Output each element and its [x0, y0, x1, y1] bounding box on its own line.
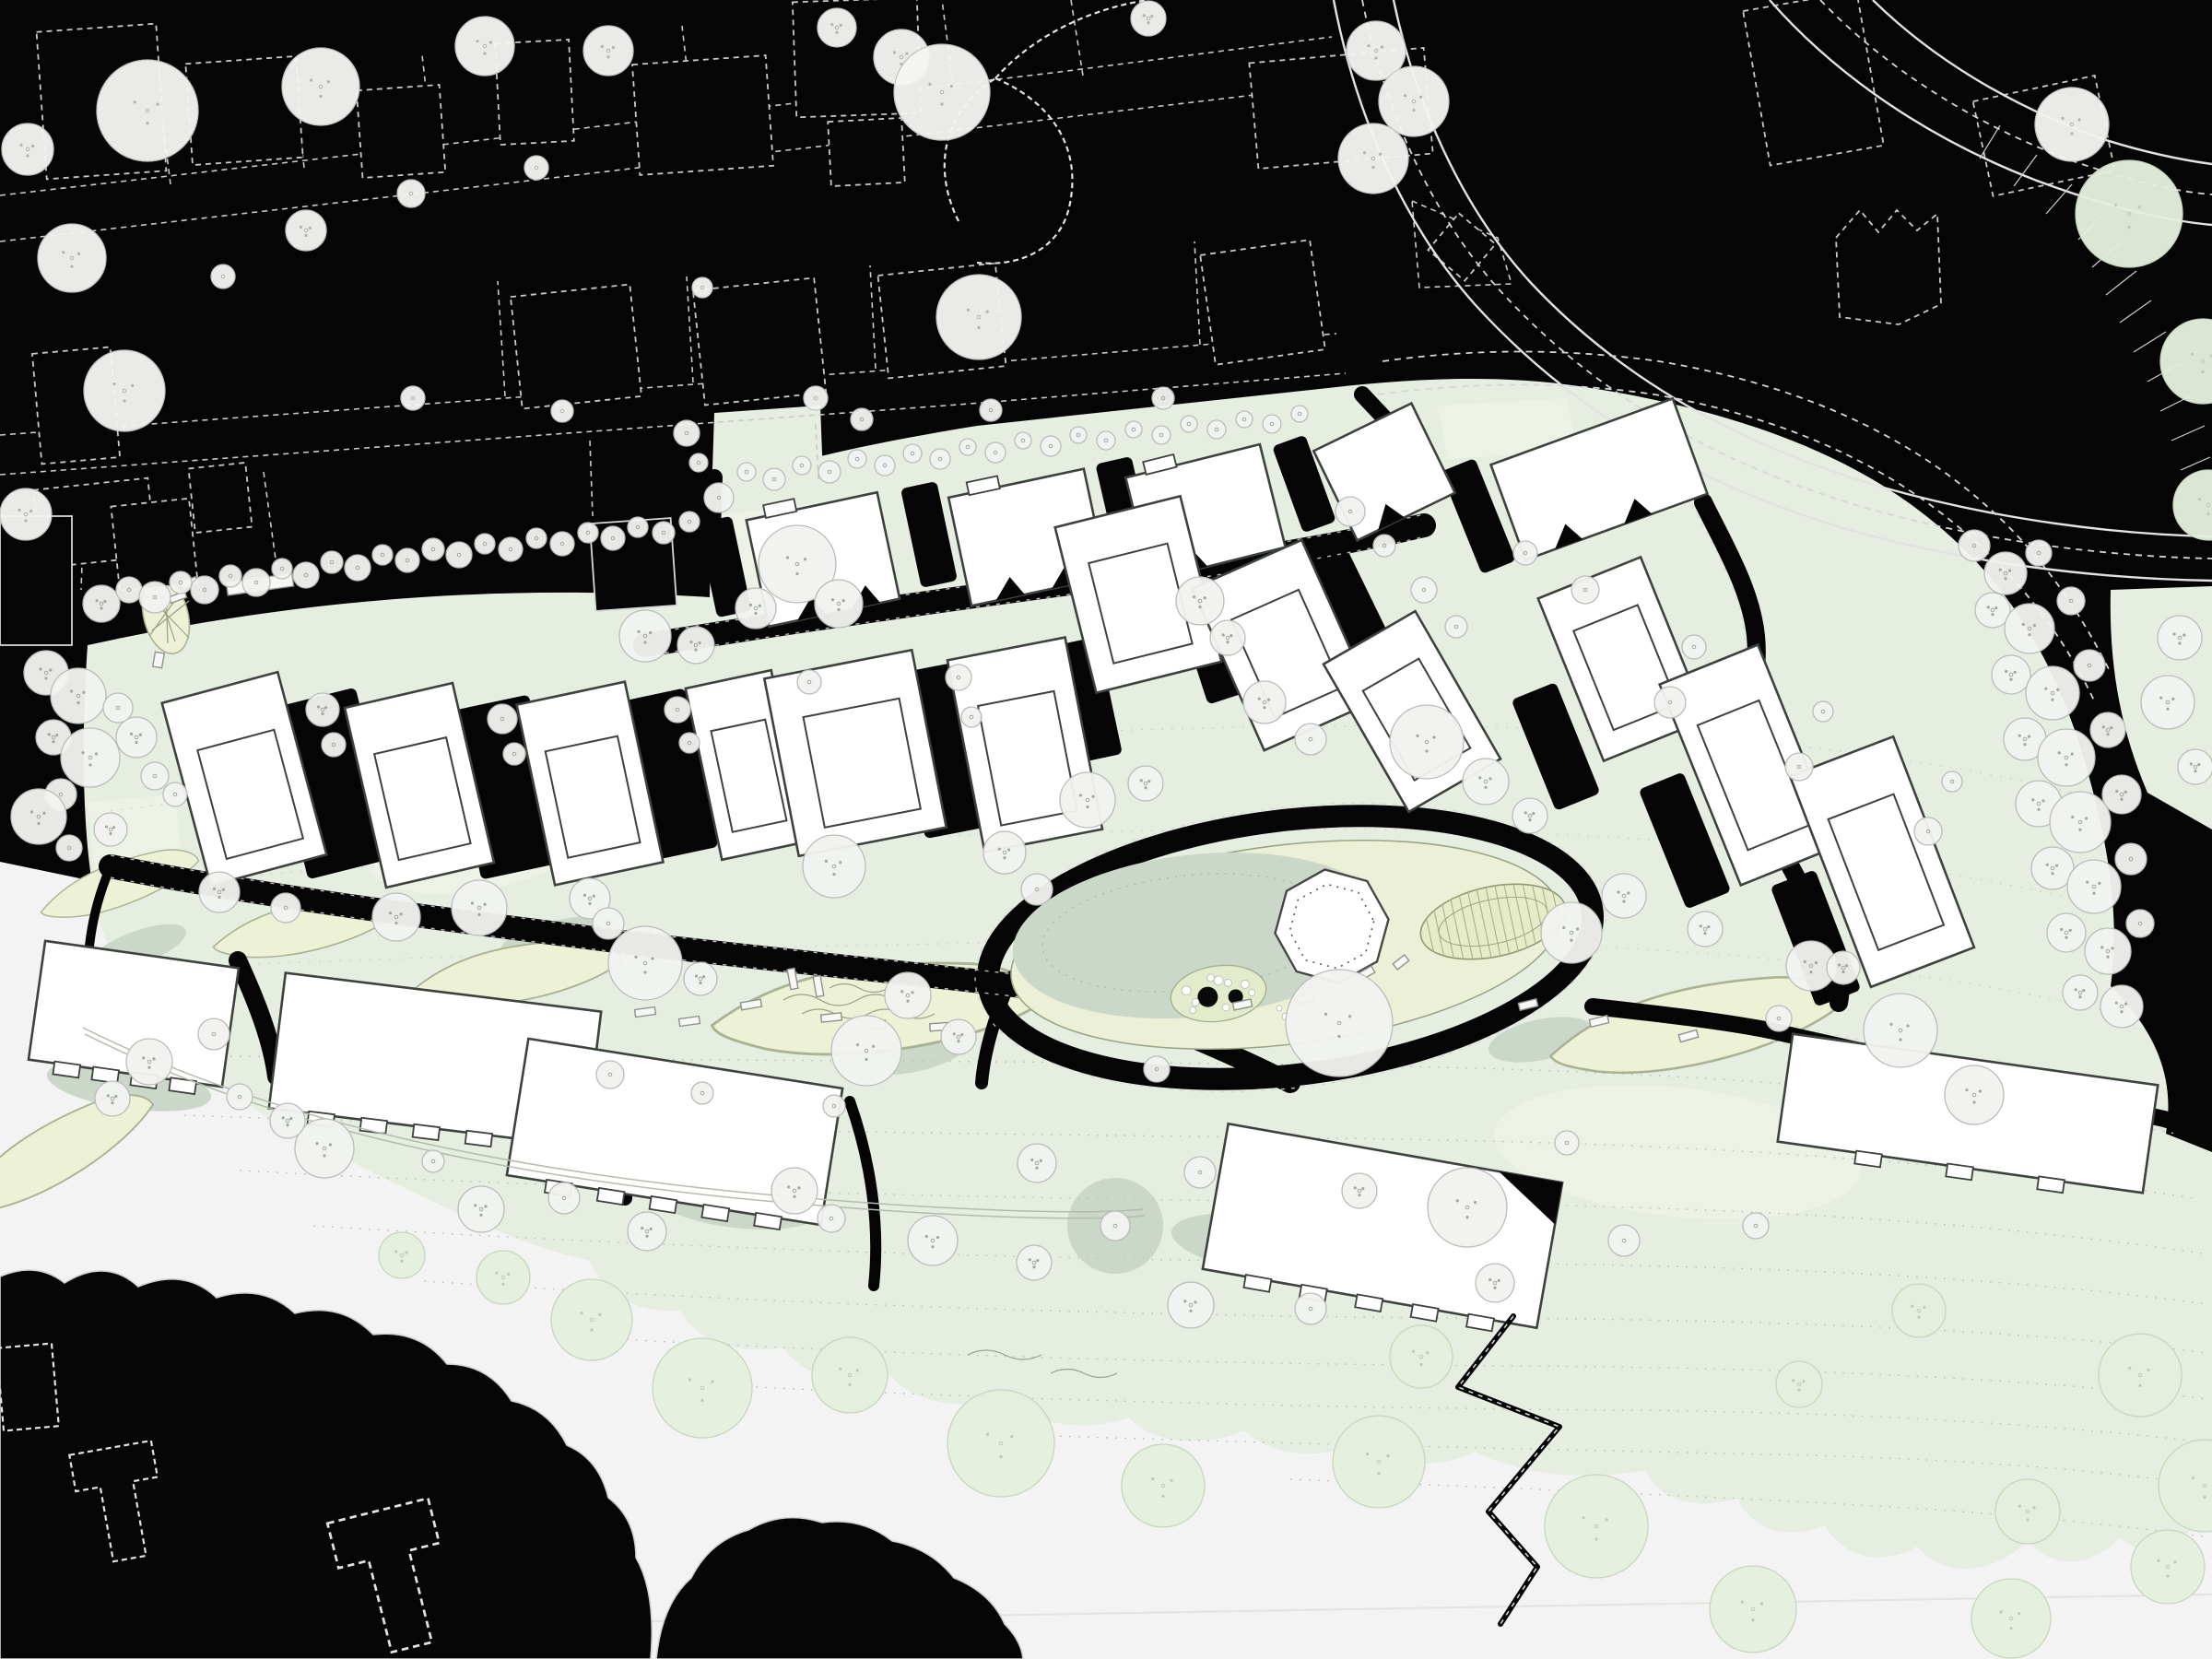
tree	[2057, 587, 2085, 615]
tree	[452, 880, 507, 935]
tree	[1914, 818, 1942, 845]
tree	[1131, 1, 1166, 36]
tree	[551, 400, 573, 422]
tree	[2126, 910, 2154, 937]
tree	[2074, 650, 2105, 681]
tree	[2141, 676, 2194, 729]
tree	[2050, 792, 2111, 853]
tree	[475, 534, 495, 554]
tree	[372, 545, 393, 565]
tree	[763, 468, 785, 490]
tree	[628, 1212, 666, 1251]
tree	[1128, 766, 1163, 801]
tree	[227, 1084, 253, 1110]
tree	[691, 1082, 713, 1104]
tree	[936, 275, 1021, 359]
tree	[593, 908, 624, 939]
tree	[282, 48, 359, 125]
tree	[1743, 1213, 1769, 1239]
tree	[38, 224, 106, 292]
tree	[2035, 88, 2109, 161]
tree	[51, 668, 106, 724]
tree	[1335, 497, 1365, 526]
tree	[2100, 985, 2143, 1028]
tree	[550, 532, 574, 556]
tree	[293, 562, 319, 588]
tree	[946, 665, 971, 690]
tree	[2099, 1334, 2182, 1417]
tree	[831, 1016, 901, 1086]
tree	[163, 782, 187, 806]
tree	[1555, 1131, 1579, 1155]
tree	[2085, 928, 2131, 974]
tree	[1785, 753, 1813, 781]
tree	[1813, 701, 1833, 722]
tree	[1827, 951, 1860, 984]
tree	[2026, 540, 2052, 566]
tree	[1184, 1157, 1216, 1188]
tree	[524, 156, 548, 180]
tree	[306, 693, 339, 726]
tree	[1864, 994, 1937, 1067]
tree	[397, 180, 425, 207]
tree	[1710, 1566, 1796, 1653]
tree	[1445, 616, 1467, 638]
tree	[815, 580, 863, 628]
tree	[1995, 1479, 2060, 1544]
bench	[153, 652, 165, 667]
tree	[737, 463, 756, 481]
tree	[83, 585, 120, 622]
tree	[219, 565, 241, 587]
tree	[1545, 1475, 1648, 1578]
tree	[551, 1279, 632, 1360]
tree	[583, 26, 633, 76]
tree	[1428, 1168, 1507, 1247]
tree	[345, 555, 371, 581]
tree	[1971, 1579, 2051, 1658]
tree	[526, 528, 547, 548]
tree	[1682, 635, 1706, 659]
tree	[1463, 759, 1509, 805]
tree	[818, 8, 856, 47]
tree	[679, 512, 700, 532]
tree	[1168, 1282, 1214, 1328]
tree	[679, 733, 700, 753]
tree	[242, 569, 270, 596]
tree	[851, 408, 873, 430]
tree	[959, 439, 976, 455]
tree	[797, 670, 821, 694]
tree	[422, 538, 444, 560]
tree	[141, 762, 169, 790]
tree	[804, 386, 828, 410]
tree	[885, 972, 931, 1018]
tree	[2131, 1530, 2205, 1604]
tree	[103, 693, 133, 723]
tree	[692, 277, 712, 298]
tree	[1373, 535, 1395, 557]
tree	[980, 399, 1002, 421]
tree	[1688, 912, 1723, 947]
tree	[2178, 749, 2212, 784]
tree	[116, 717, 157, 758]
tree	[1295, 1293, 1326, 1324]
tree	[823, 1095, 845, 1117]
tree	[1263, 415, 1281, 433]
tree	[1984, 552, 2027, 594]
tree	[422, 1150, 444, 1172]
tree	[401, 386, 425, 410]
tree	[1602, 874, 1646, 918]
tree	[908, 1216, 958, 1265]
tree	[56, 835, 82, 861]
tree	[1992, 655, 2030, 694]
tree	[1411, 577, 1437, 603]
bench	[821, 1013, 842, 1022]
tree	[1892, 1284, 1946, 1337]
tree	[2005, 604, 2054, 653]
tree	[2, 124, 53, 175]
site-plan-drawing	[0, 0, 2212, 1659]
tree	[961, 707, 982, 727]
tree	[1152, 426, 1171, 444]
tree	[116, 577, 142, 603]
tree	[271, 893, 300, 923]
tree	[818, 461, 841, 483]
tree	[771, 1168, 818, 1214]
tree	[503, 743, 525, 765]
tree	[1390, 1325, 1453, 1388]
tree	[1181, 416, 1197, 432]
tree	[894, 44, 990, 140]
tree	[1945, 1065, 2004, 1124]
tree	[1286, 970, 1393, 1077]
tree	[286, 210, 326, 251]
tree	[94, 813, 127, 846]
tree	[1018, 1144, 1056, 1182]
tree	[983, 831, 1026, 874]
tree	[1295, 724, 1326, 755]
tree	[1070, 427, 1087, 443]
tree	[2158, 616, 2202, 660]
tree	[191, 576, 218, 604]
tree	[477, 1251, 530, 1304]
tree	[1291, 406, 1308, 422]
tree	[455, 17, 514, 76]
tree	[322, 733, 346, 757]
tree	[1342, 1173, 1377, 1208]
tree	[1100, 1211, 1130, 1241]
tree	[1152, 387, 1174, 409]
tree	[578, 523, 598, 543]
tree	[1015, 432, 1031, 449]
tree	[875, 455, 895, 476]
tree	[1513, 541, 1537, 565]
tree	[1654, 687, 1686, 718]
tree	[446, 542, 472, 568]
tree	[1333, 1416, 1425, 1508]
tree	[2047, 913, 2086, 952]
tree	[735, 588, 776, 629]
tree	[608, 926, 682, 1000]
tree	[2115, 843, 2147, 875]
tree	[2067, 860, 2121, 913]
tree	[674, 420, 700, 446]
tree	[1959, 530, 1990, 561]
tree	[2090, 712, 2125, 747]
tree	[211, 265, 235, 288]
tree	[1017, 1245, 1052, 1280]
tree	[1608, 1225, 1640, 1256]
tree	[61, 728, 120, 787]
tree	[0, 488, 52, 540]
tree	[684, 962, 717, 995]
tree	[2102, 775, 2141, 814]
tree	[665, 697, 690, 723]
tree	[199, 872, 240, 912]
tree	[321, 551, 343, 573]
tree	[1476, 1264, 1514, 1302]
tree	[848, 450, 866, 468]
tree	[1541, 902, 1602, 963]
tree	[1379, 66, 1449, 136]
tree	[2026, 666, 2079, 720]
tree	[126, 1039, 172, 1085]
tree	[619, 610, 671, 662]
tree	[903, 444, 922, 463]
tree	[1144, 1056, 1170, 1082]
tree	[395, 548, 419, 572]
tree	[628, 517, 648, 537]
tree	[1243, 681, 1286, 724]
tree	[458, 1186, 504, 1232]
tree	[677, 627, 714, 664]
tree	[1338, 124, 1408, 194]
tree	[379, 1232, 425, 1278]
tree	[95, 1081, 130, 1116]
tree	[947, 1390, 1054, 1497]
building	[764, 650, 946, 856]
tree	[2063, 975, 2098, 1010]
tree	[548, 1182, 580, 1214]
tree	[818, 1205, 845, 1232]
tree	[139, 582, 171, 613]
tree	[601, 526, 625, 550]
tree	[1766, 1006, 1792, 1031]
tree	[1176, 577, 1224, 625]
tree	[372, 893, 420, 941]
tree	[1060, 772, 1115, 828]
tree	[689, 453, 708, 472]
tree	[2076, 160, 2183, 267]
tree	[653, 522, 675, 544]
tree	[941, 1019, 976, 1054]
tree	[2038, 729, 2095, 786]
tree	[1122, 1444, 1205, 1527]
tree	[930, 449, 950, 469]
tree	[704, 483, 734, 512]
tree	[198, 1018, 229, 1050]
tree	[1942, 771, 1962, 792]
tree	[97, 60, 198, 161]
tree	[1210, 620, 1245, 655]
tree	[272, 559, 292, 579]
tree	[653, 1338, 752, 1438]
tree	[270, 1103, 305, 1138]
tree	[985, 442, 1006, 463]
tree	[488, 704, 517, 734]
tree	[499, 537, 523, 561]
tree	[793, 456, 811, 475]
tree	[1571, 576, 1599, 604]
tree	[1236, 411, 1253, 428]
tree	[1390, 705, 1464, 779]
tree	[1125, 421, 1142, 438]
tree	[1041, 436, 1061, 456]
tree	[1776, 1361, 1822, 1407]
tree	[803, 835, 865, 898]
tree	[84, 350, 165, 431]
tree	[1207, 420, 1226, 439]
tree	[170, 571, 192, 594]
site-plan-page	[0, 0, 2212, 1659]
tree	[1021, 874, 1053, 905]
tree	[1097, 431, 1115, 450]
tree	[11, 789, 66, 844]
tree	[596, 1061, 624, 1088]
tree	[1512, 798, 1547, 833]
tree	[812, 1337, 888, 1413]
